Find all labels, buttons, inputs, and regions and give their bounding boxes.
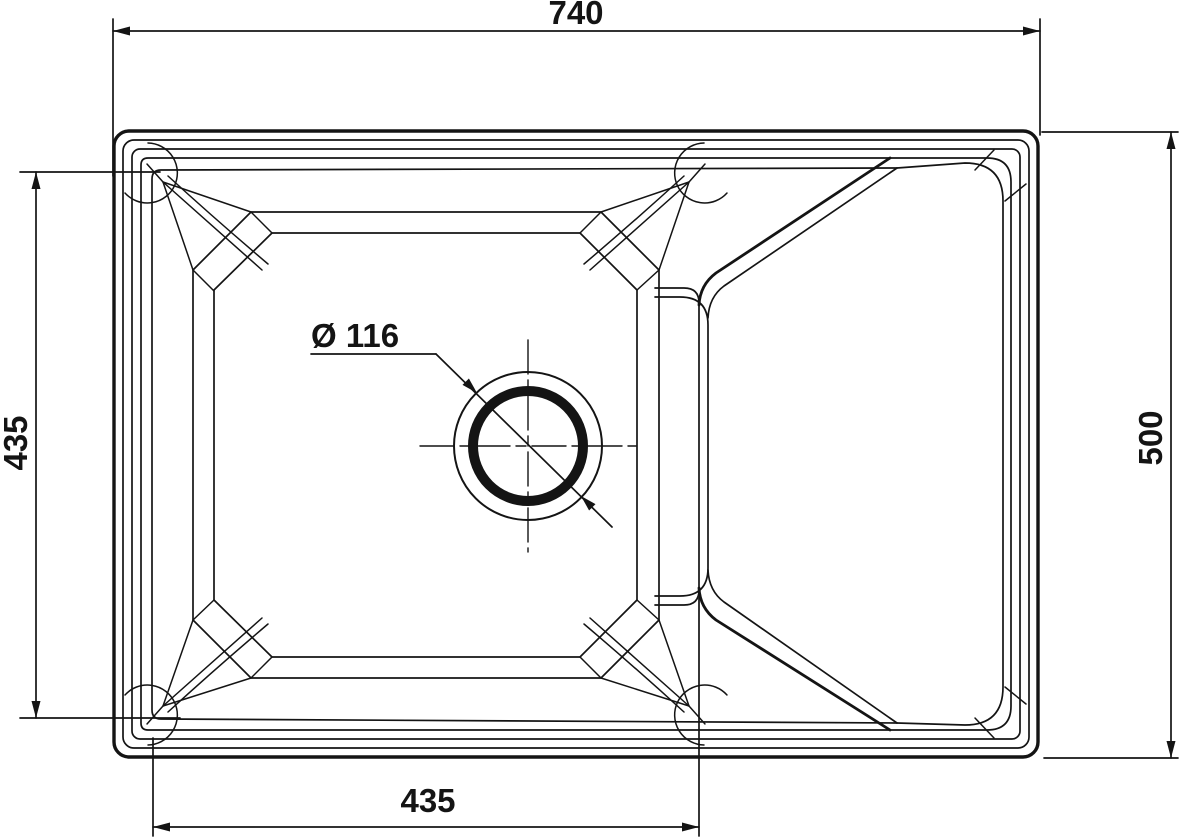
drainer-channel-outer: [655, 288, 699, 605]
rim-inner-edge: [141, 158, 1011, 730]
bowl-corner-pocket-tr: [675, 143, 727, 203]
dim-label-overall-depth: 500: [1132, 410, 1169, 465]
dim-label-overall-width: 740: [548, 0, 603, 31]
drainer-corner-facets: [975, 150, 1026, 738]
arrowhead-upper: [463, 379, 478, 394]
rim-outer-edge: [114, 131, 1038, 757]
dimension-overall-width: [113, 19, 1040, 176]
bowl-corner-facets-tr: [580, 164, 705, 290]
drainer: [655, 150, 1026, 738]
arrowhead-right: [1023, 27, 1040, 36]
dim-label-bowl-depth: 435: [0, 415, 34, 470]
bowl-lip-inner: [214, 233, 637, 657]
arrowhead-bottom: [1167, 741, 1176, 758]
drain-hole: [420, 340, 636, 552]
arrowhead-left: [113, 27, 130, 36]
sink-outer-rim: [114, 131, 1038, 757]
dim-label-bowl-width: 435: [400, 782, 455, 819]
sink-drawing: 740 500 435 435 Ø 116: [0, 0, 1181, 839]
bowl-corner-pocket-br: [675, 685, 727, 745]
arrowhead-right: [682, 823, 699, 832]
arrowhead-top: [32, 172, 41, 189]
bowl-corner-facets-tl: [147, 164, 272, 291]
bowl-lip-outer: [193, 212, 659, 678]
bowl-corner-facets-bl: [147, 600, 272, 724]
arrowhead-left: [153, 823, 170, 832]
dimension-drain-diameter: [311, 354, 612, 527]
drainer-funnel-diagonal-bottom-outer: [699, 588, 890, 730]
dim-label-drain-diameter: Ø 116: [311, 317, 399, 354]
arrowhead-top: [1167, 132, 1176, 149]
drainer-channel-inner: [655, 297, 708, 596]
arrowhead-bottom: [32, 701, 41, 718]
drainer-funnel-diagonal-bottom-inner: [708, 570, 897, 723]
drainer-lip: [897, 163, 1003, 725]
bowl: [125, 143, 727, 745]
technical-drawing-page: 740 500 435 435 Ø 116: [0, 0, 1181, 839]
drainer-funnel-diagonal-top-inner: [708, 168, 897, 318]
dimension-bowl-depth: [20, 172, 180, 718]
bowl-corner-facets-br: [580, 600, 705, 724]
